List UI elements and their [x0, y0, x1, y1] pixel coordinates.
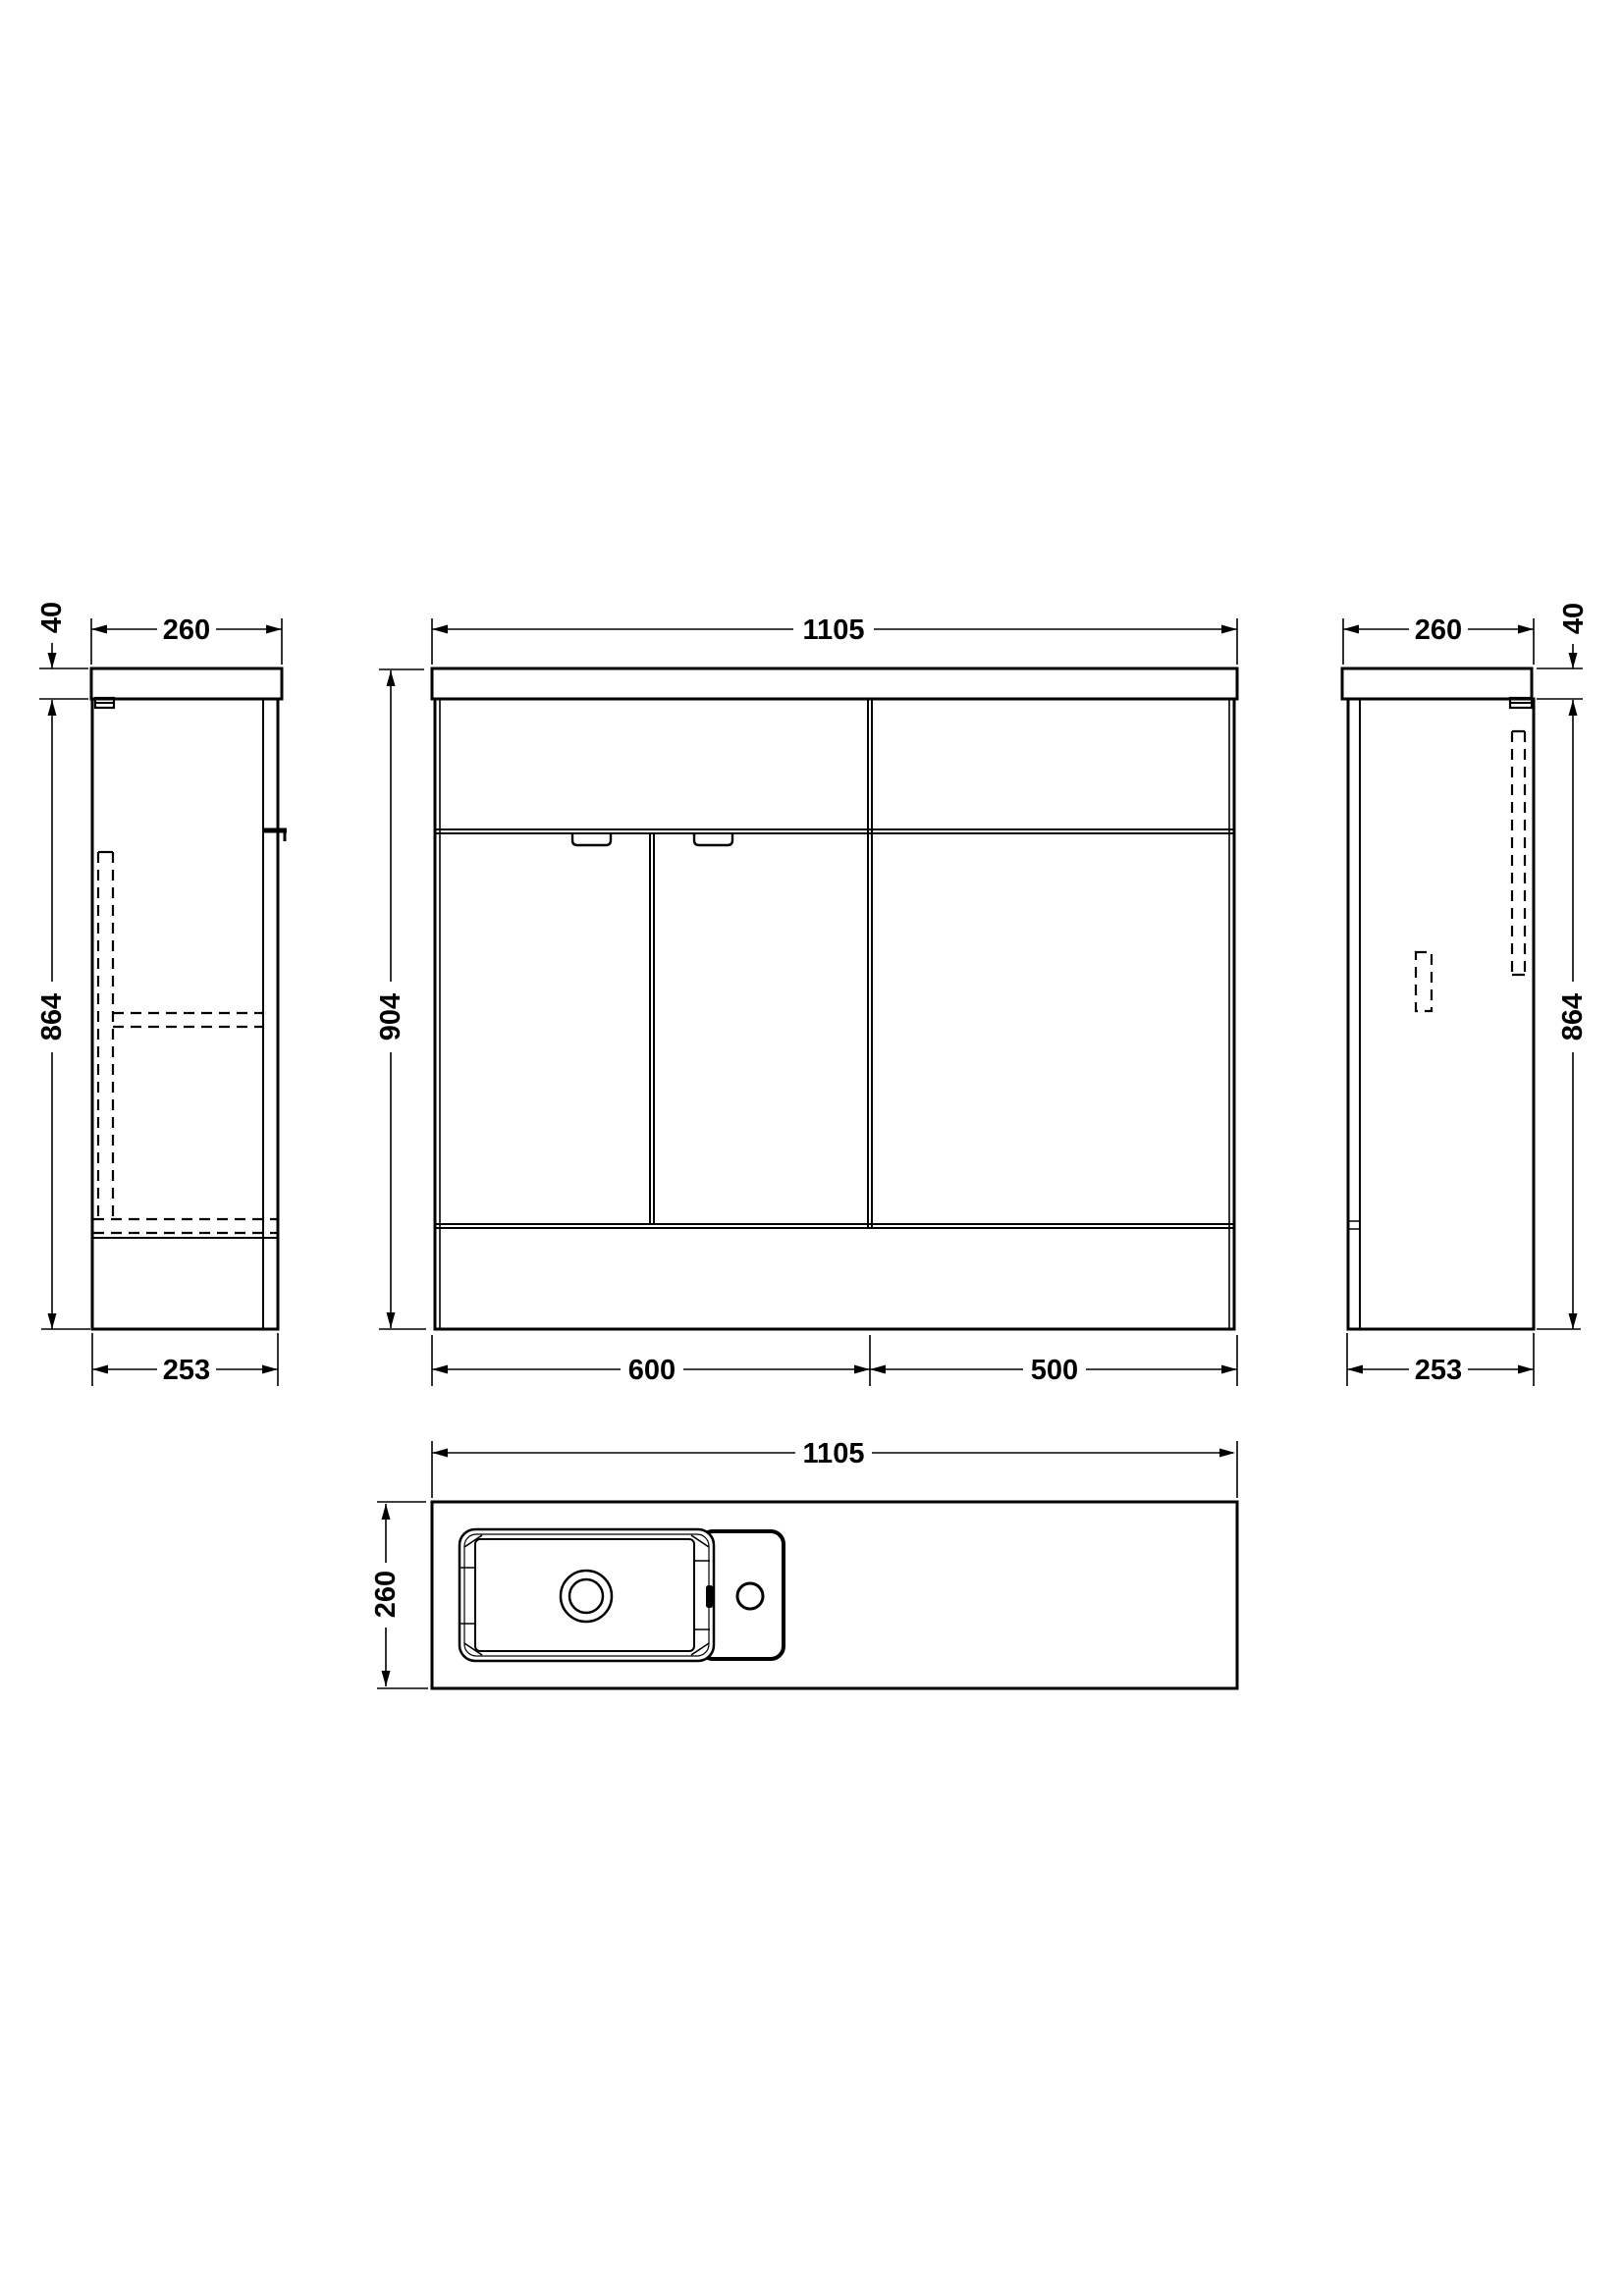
front-view-dimensions: 1105 904 600 500: [375, 614, 1237, 1386]
right-view-worktop-thickness-label: 40: [1558, 603, 1590, 634]
front-view-vanity-width-label: 600: [628, 1355, 676, 1386]
left-view-door-handle: [262, 830, 287, 841]
right-view-carcass: [1348, 699, 1534, 1329]
right-view-width-label: 260: [1415, 614, 1462, 646]
front-view-plinth-line: [435, 1224, 1234, 1228]
right-side-view: [1342, 668, 1534, 1329]
left-view-height-label: 864: [36, 993, 68, 1041]
left-view-worktop: [91, 668, 282, 699]
left-view-dimensions: 260 40 864 253: [36, 602, 282, 1386]
front-view: [432, 668, 1237, 1329]
front-view-width-label: 1105: [803, 614, 865, 646]
right-view-worktop: [1342, 668, 1532, 699]
basin-overflow-slot: [706, 1585, 713, 1608]
left-view-worktop-thickness-label: 40: [36, 602, 68, 633]
front-view-unit-divider: [868, 699, 872, 1228]
front-view-height-label: 904: [375, 993, 406, 1041]
plan-view: [432, 1502, 1237, 1688]
technical-drawing: 260 40 864 253: [0, 0, 1623, 2296]
drawing-sheet: 260 40 864 253: [0, 0, 1623, 2296]
plan-view-basin: [460, 1529, 714, 1661]
plan-view-depth-label: 260: [370, 1571, 402, 1618]
right-view-hidden-handle-caps: [1512, 731, 1525, 975]
plan-view-tap-hole: [737, 1583, 763, 1609]
basin-outer-rim: [460, 1529, 714, 1661]
right-view-height-label: 864: [1557, 993, 1589, 1041]
front-view-worktop: [432, 668, 1237, 699]
left-side-view: [91, 668, 287, 1329]
front-view-carcass: [435, 699, 1234, 1329]
left-view-width-label: 260: [163, 614, 210, 646]
front-view-door-divider: [650, 833, 654, 1224]
front-view-wc-width-label: 500: [1031, 1355, 1078, 1386]
right-view-depth-label: 253: [1415, 1355, 1462, 1386]
front-view-top-rail-line: [435, 829, 1234, 833]
plan-view-width-label: 1105: [803, 1438, 865, 1469]
left-view-depth-label: 253: [163, 1355, 210, 1386]
right-view-hidden-fixing: [1416, 952, 1432, 1011]
right-view-dimensions: 260 40 864 253: [1343, 603, 1590, 1386]
